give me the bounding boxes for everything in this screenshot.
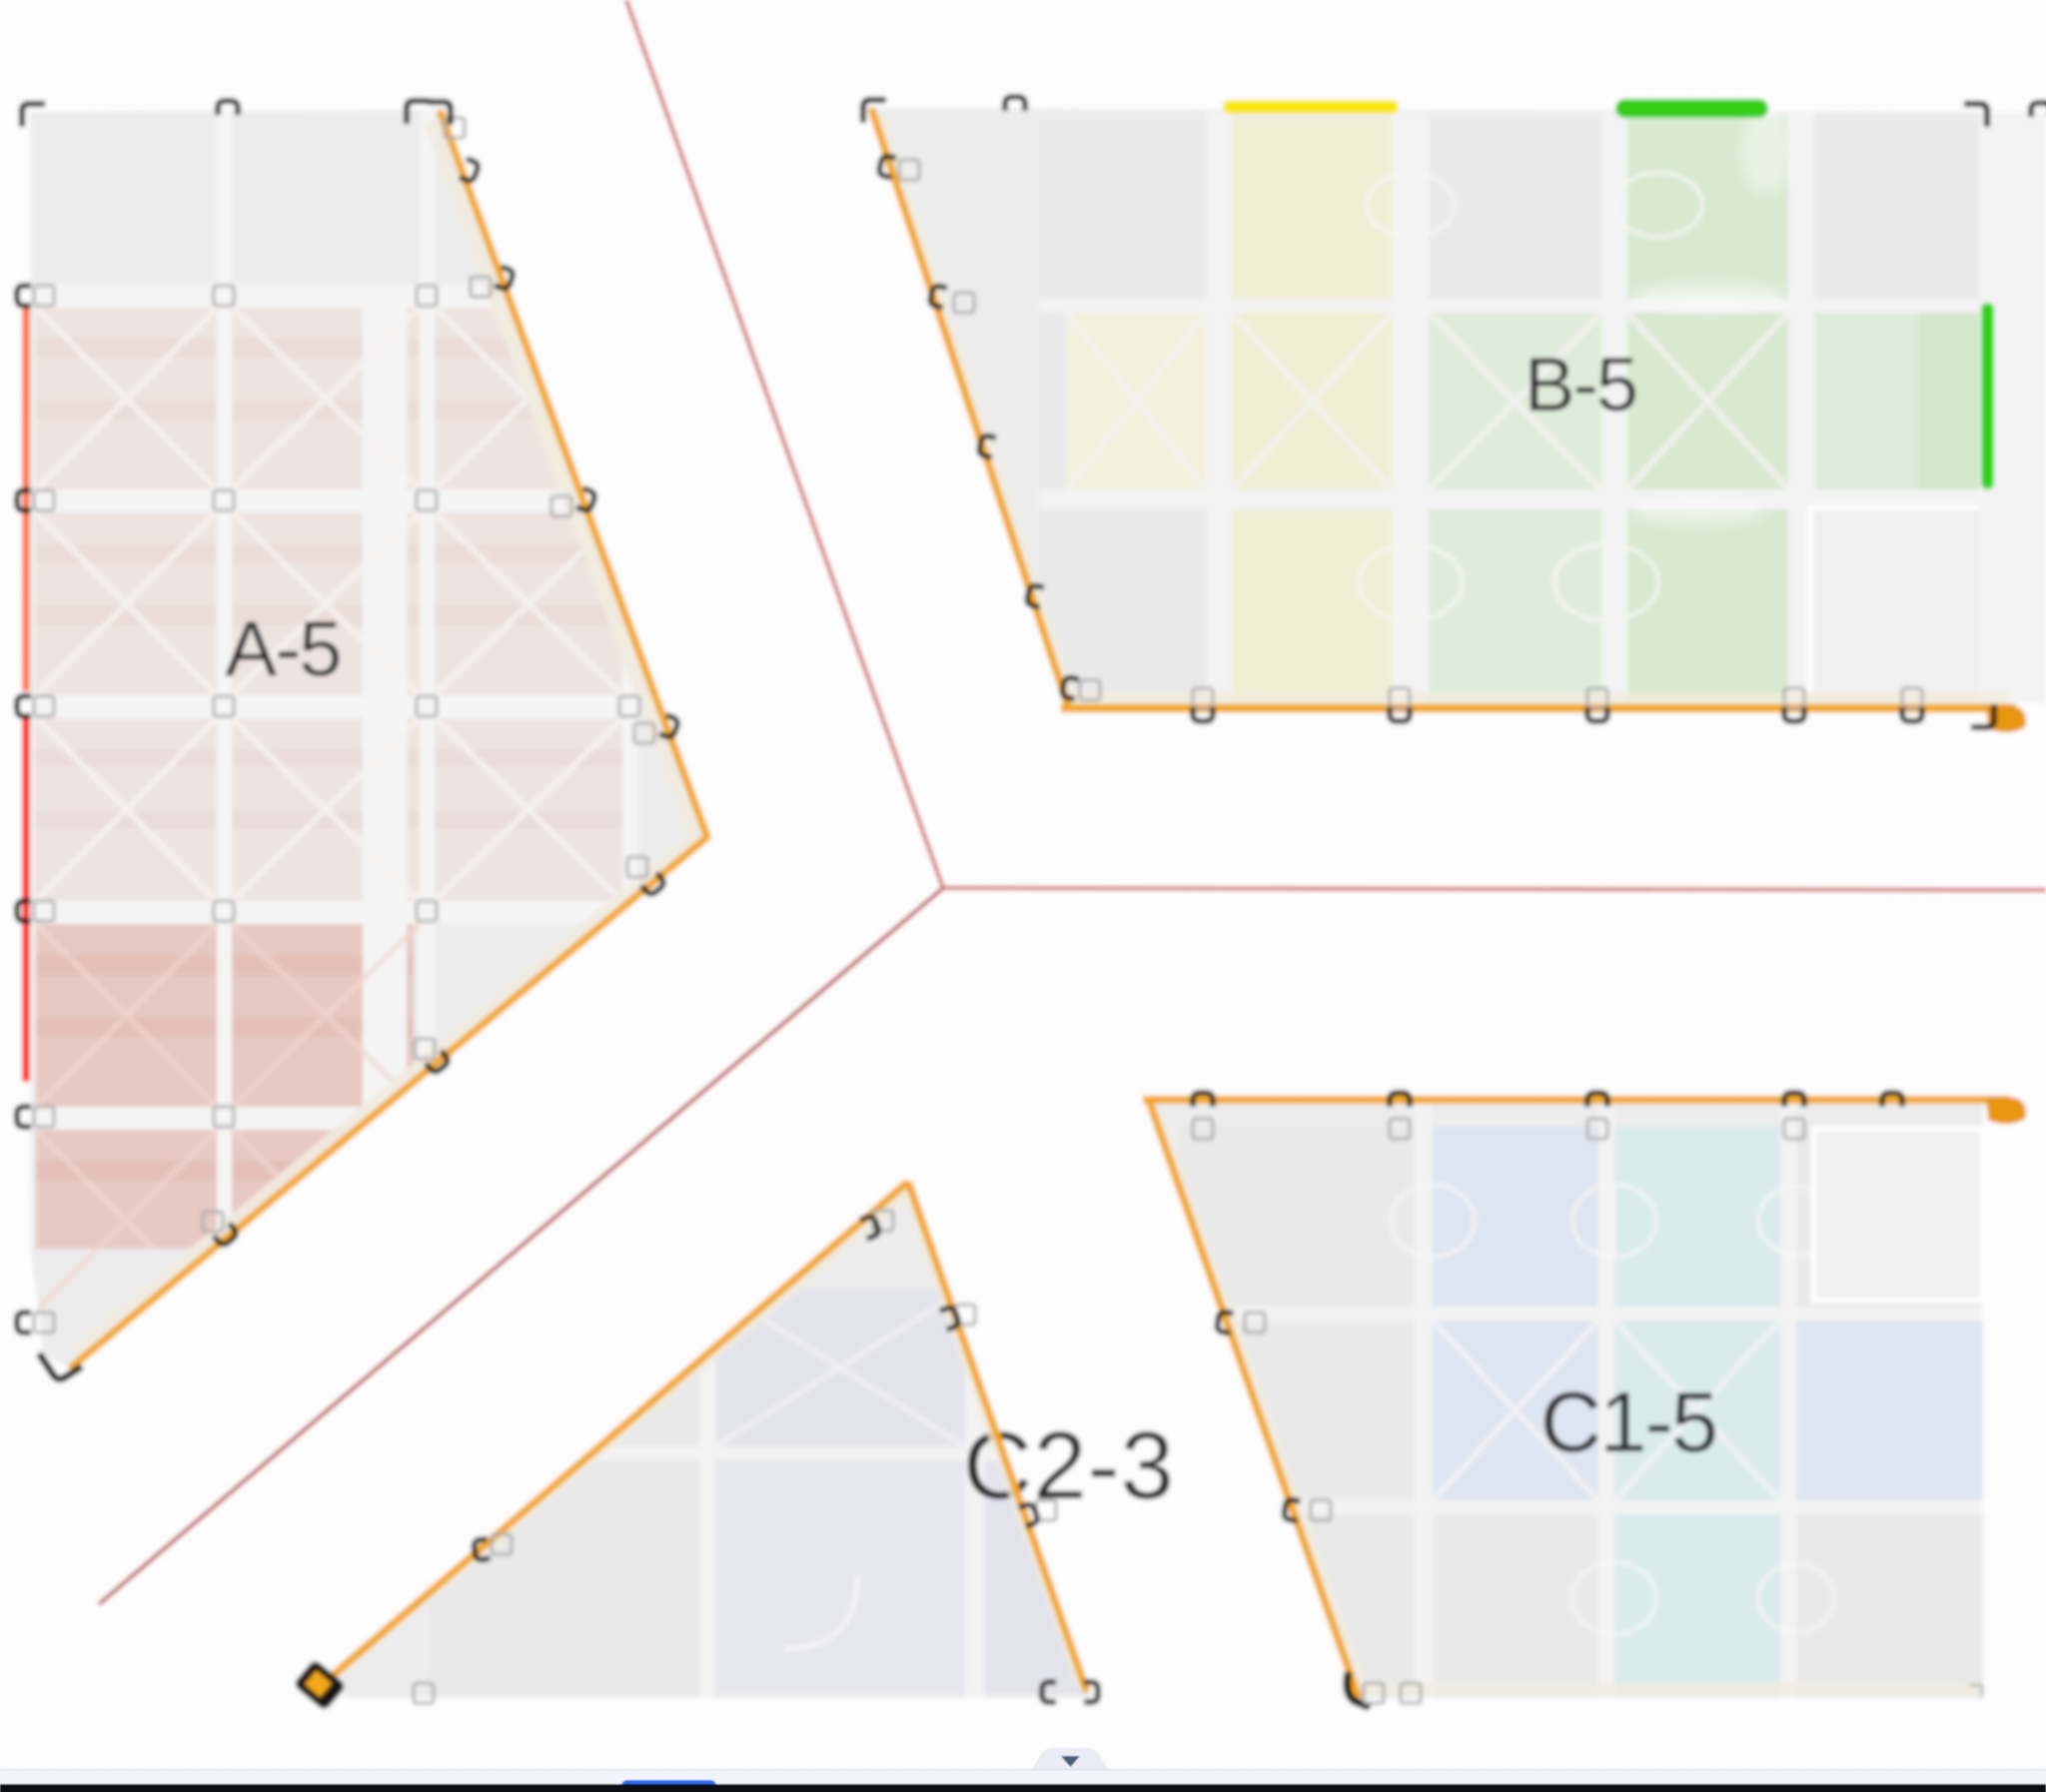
svg-text:A-5: A-5 bbox=[225, 604, 340, 692]
svg-text:C1-5: C1-5 bbox=[1540, 1375, 1716, 1470]
svg-text:B-5: B-5 bbox=[1525, 343, 1636, 428]
